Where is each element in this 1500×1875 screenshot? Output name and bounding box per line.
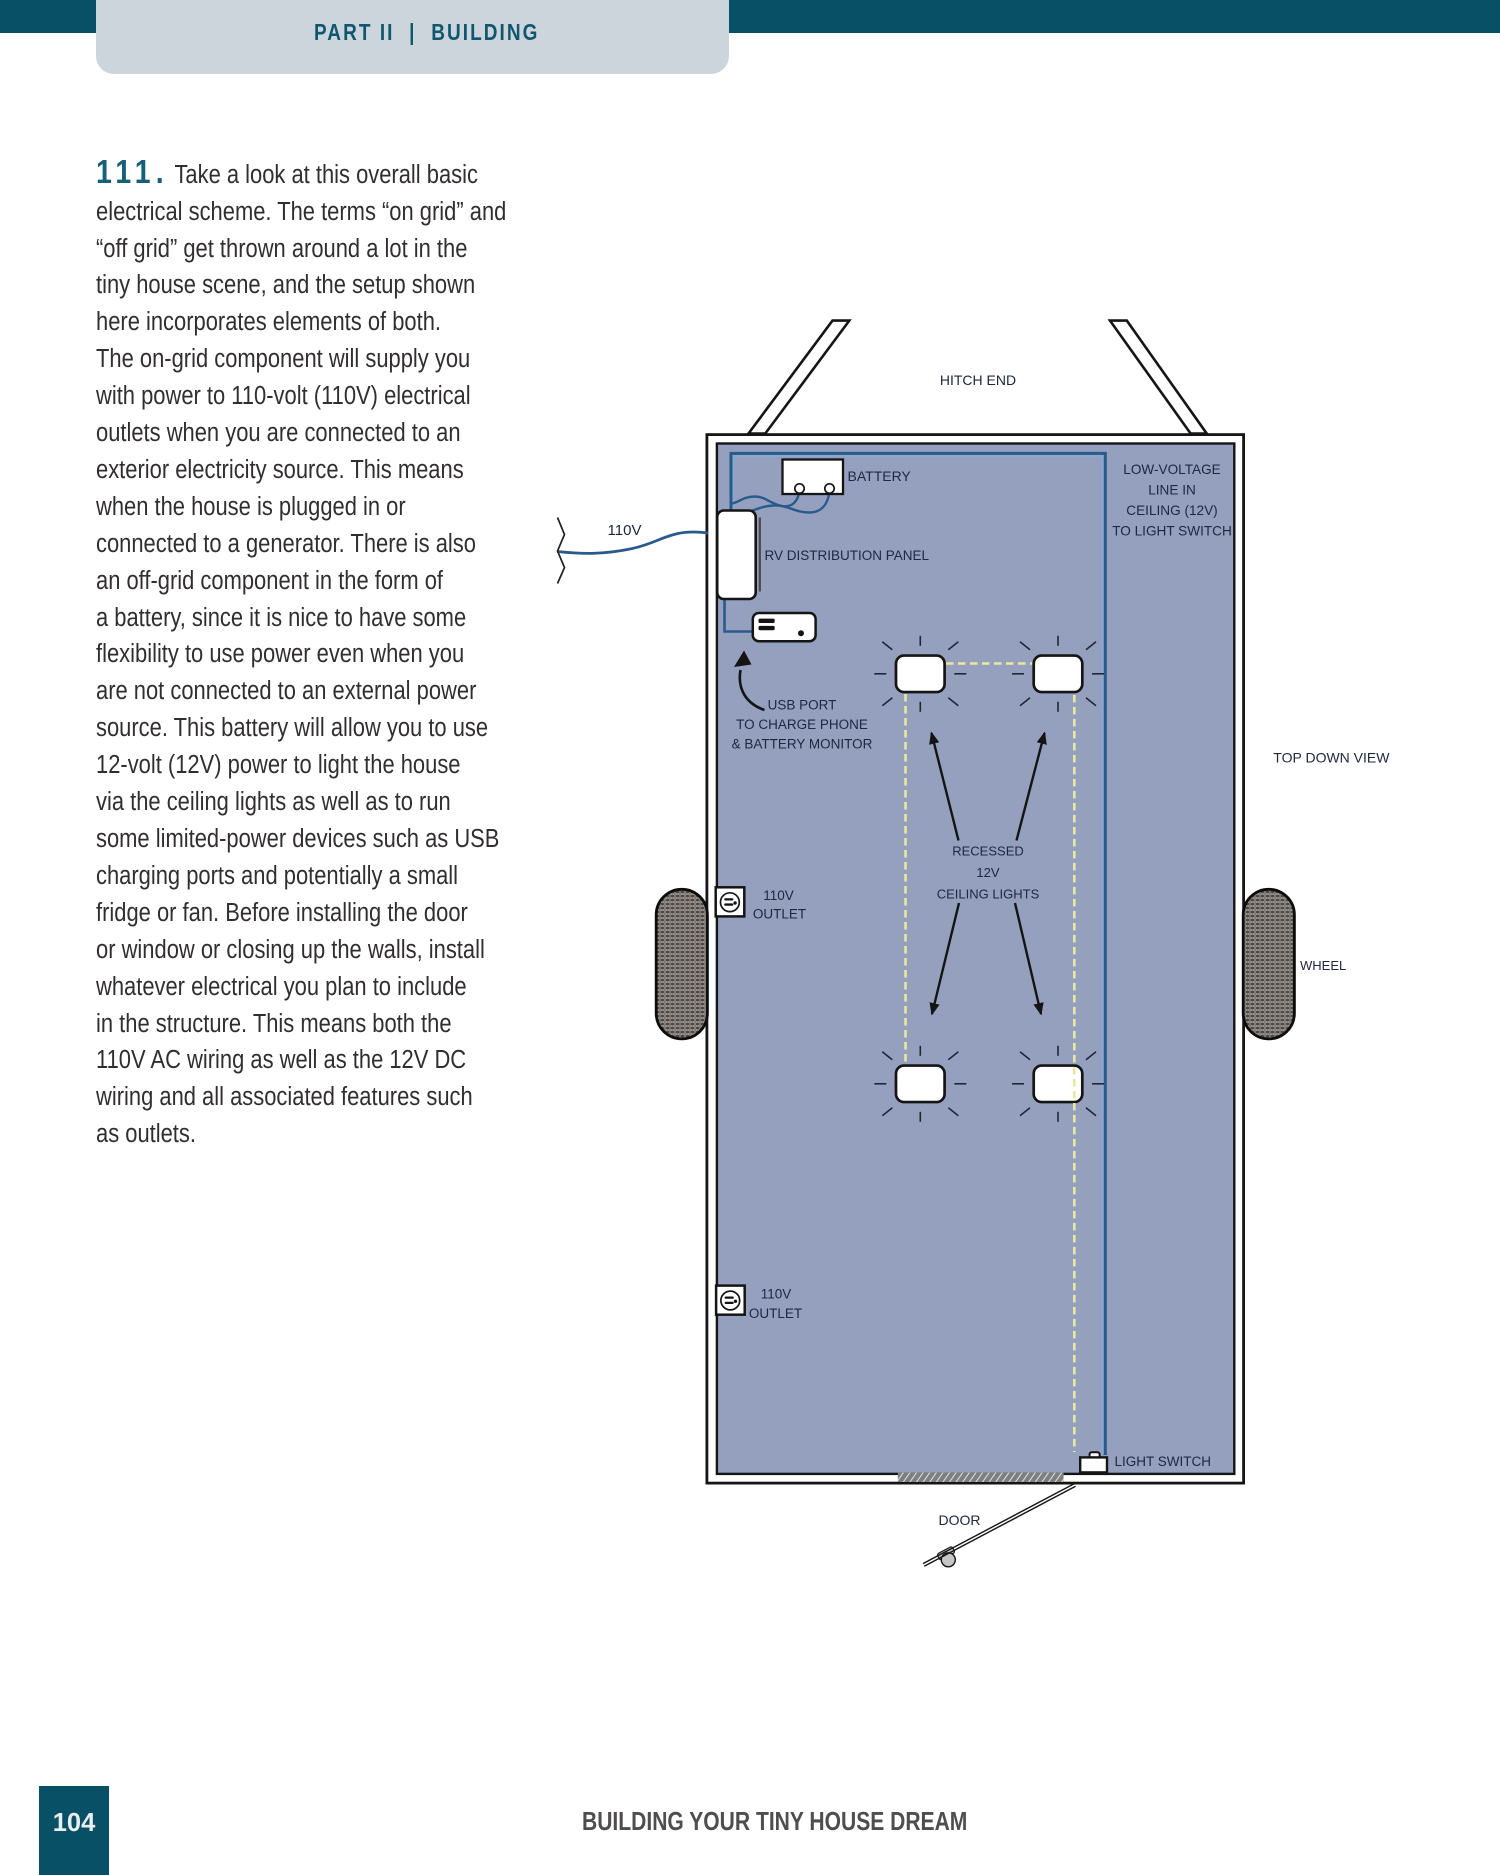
svg-text:OUTLET: OUTLET <box>753 907 806 922</box>
svg-text:LOW-VOLTAGE: LOW-VOLTAGE <box>1123 462 1220 477</box>
svg-text:& BATTERY MONITOR: & BATTERY MONITOR <box>732 737 873 752</box>
svg-text:110V: 110V <box>761 1286 792 1301</box>
svg-text:CEILING LIGHTS: CEILING LIGHTS <box>937 887 1040 902</box>
svg-text:CEILING (12V): CEILING (12V) <box>1126 503 1217 518</box>
svg-text:RECESSED: RECESSED <box>952 844 1024 859</box>
svg-text:WHEEL: WHEEL <box>1300 958 1346 973</box>
svg-text:DOOR: DOOR <box>939 1512 981 1528</box>
svg-text:USB PORT: USB PORT <box>768 698 837 713</box>
svg-text:LINE IN: LINE IN <box>1148 483 1196 498</box>
svg-text:110V: 110V <box>763 888 794 903</box>
svg-text:BATTERY: BATTERY <box>848 468 912 484</box>
svg-text:TOP DOWN VIEW: TOP DOWN VIEW <box>1273 750 1390 766</box>
svg-text:LIGHT SWITCH: LIGHT SWITCH <box>1115 1454 1212 1469</box>
svg-text:HITCH END: HITCH END <box>940 372 1016 388</box>
svg-text:110V: 110V <box>608 522 642 539</box>
svg-text:12V: 12V <box>976 865 999 880</box>
svg-text:TO LIGHT SWITCH: TO LIGHT SWITCH <box>1112 523 1232 538</box>
svg-text:TO CHARGE PHONE: TO CHARGE PHONE <box>736 717 868 732</box>
svg-text:RV DISTRIBUTION PANEL: RV DISTRIBUTION PANEL <box>765 548 930 563</box>
svg-text:OUTLET: OUTLET <box>749 1306 802 1321</box>
